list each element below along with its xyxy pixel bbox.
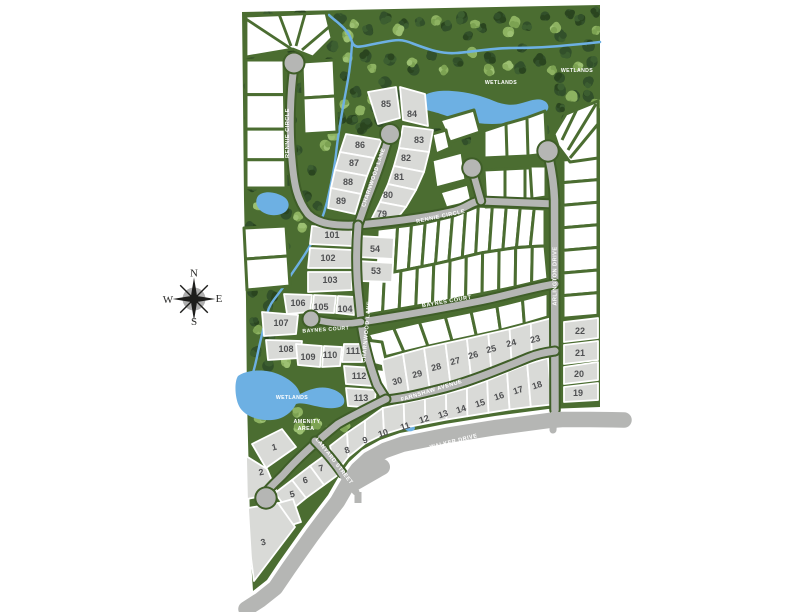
svg-text:81: 81 [394, 172, 404, 182]
svg-text:108: 108 [278, 344, 293, 354]
svg-text:113: 113 [354, 393, 369, 403]
svg-text:89: 89 [336, 196, 346, 206]
svg-text:84: 84 [407, 109, 417, 119]
svg-text:W: W [163, 294, 174, 306]
svg-text:82: 82 [401, 153, 411, 163]
svg-text:80: 80 [383, 190, 393, 200]
svg-text:88: 88 [343, 177, 353, 187]
svg-text:AREA: AREA [298, 426, 315, 432]
svg-text:ARLINGTON DRIVE: ARLINGTON DRIVE [553, 246, 559, 305]
svg-text:111: 111 [346, 346, 360, 356]
svg-text:112: 112 [352, 371, 367, 381]
svg-text:22: 22 [575, 326, 585, 336]
svg-text:53: 53 [371, 266, 381, 276]
svg-text:21: 21 [575, 348, 585, 358]
svg-text:107: 107 [273, 318, 288, 328]
svg-text:AMENITY: AMENITY [293, 419, 320, 425]
svg-text:86: 86 [355, 140, 365, 150]
svg-text:19: 19 [573, 388, 583, 398]
svg-text:WETLANDS: WETLANDS [485, 80, 517, 86]
svg-text:104: 104 [337, 304, 352, 314]
svg-text:87: 87 [349, 158, 359, 168]
svg-text:WETLANDS: WETLANDS [561, 68, 593, 74]
svg-text:WETLANDS: WETLANDS [276, 395, 308, 401]
svg-text:109: 109 [300, 352, 315, 362]
svg-text:S: S [191, 316, 197, 328]
svg-text:106: 106 [290, 298, 305, 308]
svg-text:103: 103 [322, 275, 337, 285]
svg-text:54: 54 [370, 244, 380, 254]
svg-text:N: N [190, 268, 198, 280]
svg-text:110: 110 [323, 350, 338, 360]
svg-text:83: 83 [414, 135, 424, 145]
svg-text:20: 20 [574, 369, 584, 379]
svg-text:101: 101 [324, 230, 339, 240]
svg-text:RENNIE CIRCLE: RENNIE CIRCLE [285, 108, 291, 158]
svg-text:E: E [216, 293, 223, 305]
svg-text:102: 102 [320, 253, 335, 263]
svg-text:105: 105 [313, 302, 328, 312]
svg-text:85: 85 [381, 99, 391, 109]
